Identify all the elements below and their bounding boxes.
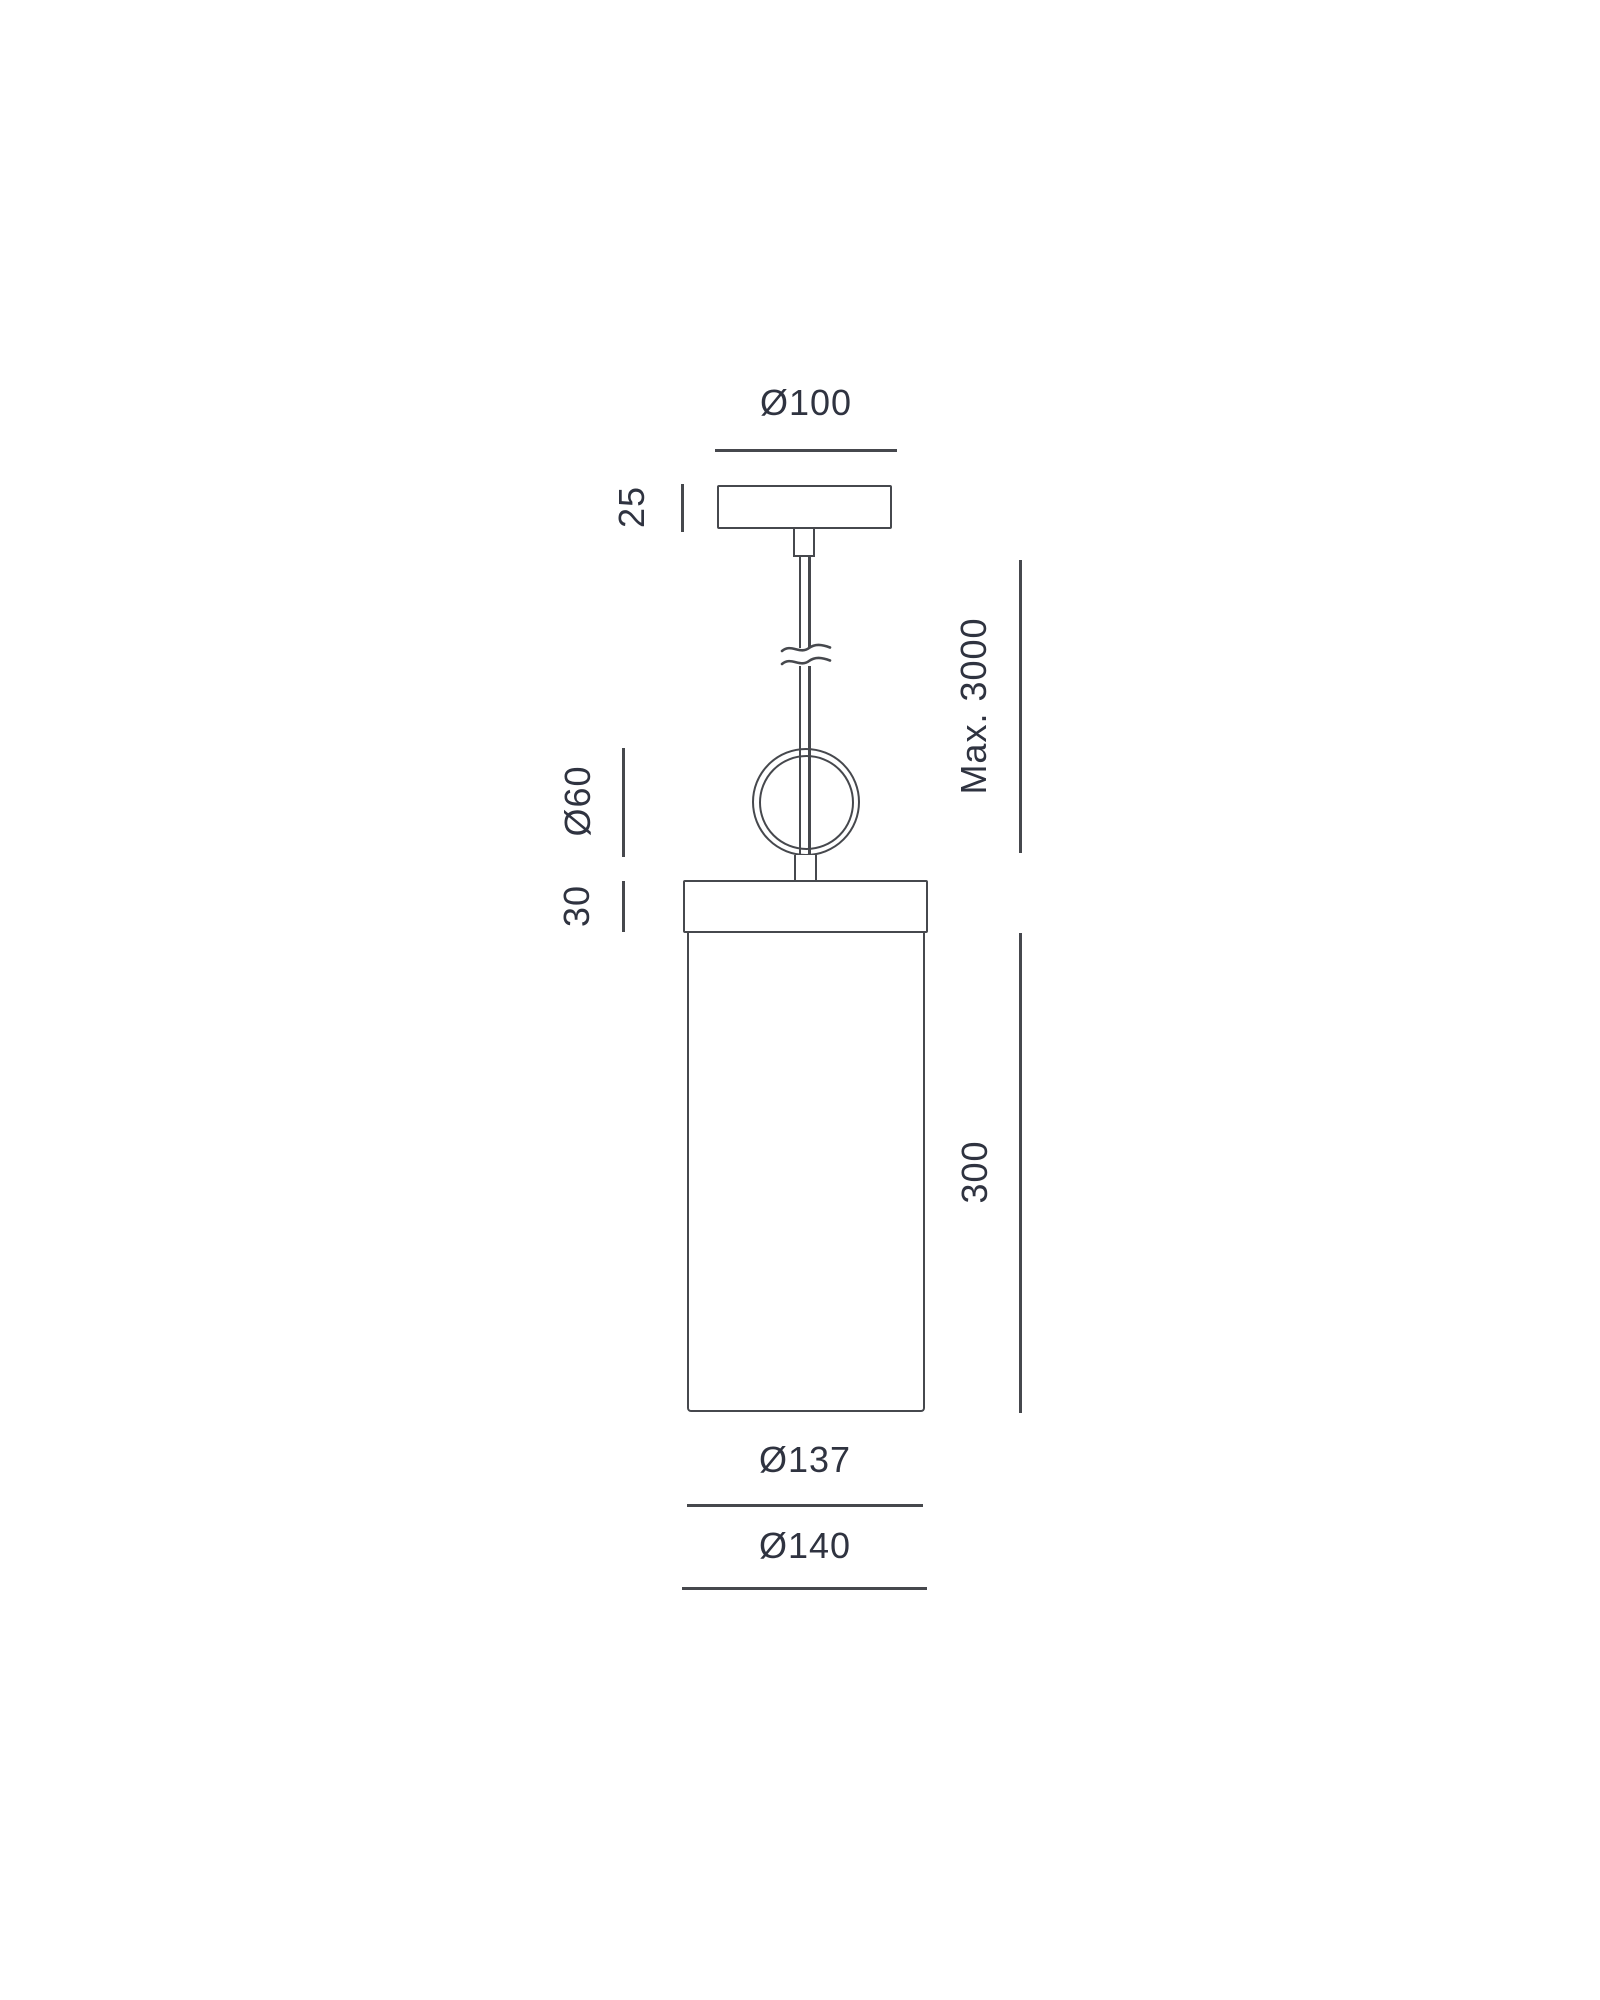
ring-diameter-tick — [622, 748, 625, 857]
shade-top-cap — [683, 880, 928, 933]
cord-stem-bottom — [794, 855, 817, 880]
canopy-diameter-dimline — [715, 449, 897, 452]
cord-stem-top — [793, 529, 815, 557]
outer-diameter-dimline — [682, 1587, 927, 1590]
inner-diameter-dimline — [687, 1504, 923, 1507]
outer-diameter-label: Ø140 — [759, 1525, 851, 1567]
max-drop-label: Max. 3000 — [953, 617, 995, 794]
canopy-height-label: 25 — [611, 486, 653, 528]
ring-diameter-label: Ø60 — [557, 765, 599, 836]
shade-body — [687, 933, 925, 1412]
cord-break-symbol-icon — [775, 640, 837, 668]
cap-height-tick — [622, 881, 625, 932]
canopy-diameter-label: Ø100 — [760, 382, 852, 424]
decorative-ring-inner — [759, 755, 854, 850]
ceiling-canopy — [717, 485, 892, 529]
suspension-cord-upper-left — [799, 555, 802, 648]
cap-height-label: 30 — [556, 885, 598, 927]
inner-diameter-label: Ø137 — [759, 1439, 851, 1481]
dimension-drawing-canvas: Ø100 25 Ø60 Max. 3000 30 300 Ø137 Ø140 — [0, 0, 1600, 2000]
max-drop-dimline — [1019, 560, 1022, 853]
suspension-cord-upper-right — [808, 555, 811, 648]
shade-height-dimline — [1019, 933, 1022, 1413]
canopy-height-tick — [681, 484, 684, 532]
shade-height-label: 300 — [954, 1140, 996, 1203]
